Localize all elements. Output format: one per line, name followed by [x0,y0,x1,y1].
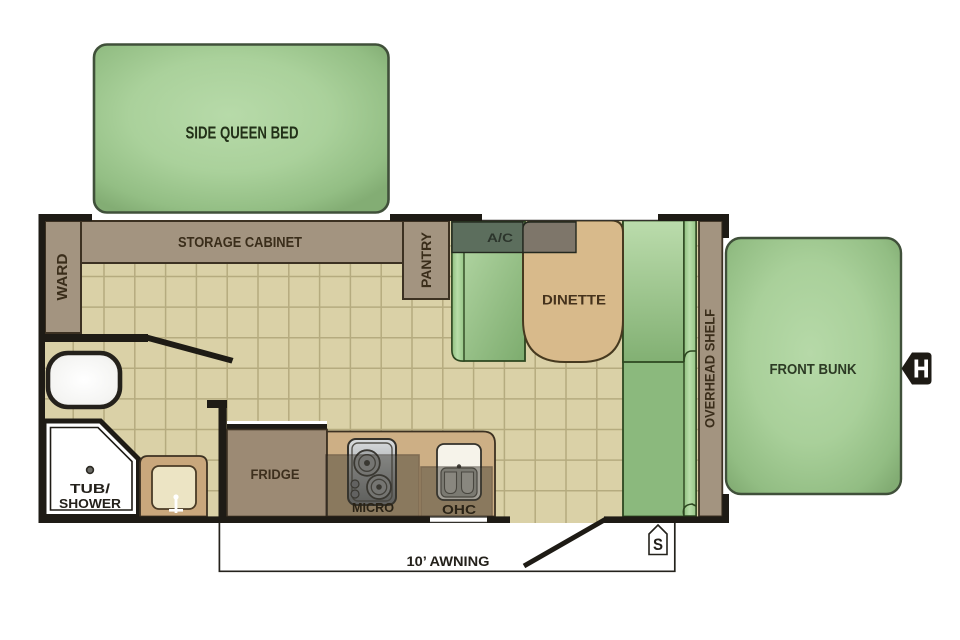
svg-text:S: S [653,535,663,554]
svg-text:STORAGE CABINET: STORAGE CABINET [178,235,302,251]
svg-text:OHC: OHC [442,503,476,517]
svg-text:SIDE QUEEN BED: SIDE QUEEN BED [186,123,299,143]
svg-text:DINETTE: DINETTE [542,292,606,308]
svg-text:MICRO: MICRO [352,501,394,515]
svg-text:OVERHEAD SHELF: OVERHEAD SHELF [703,309,718,428]
svg-text:10’ AWNING: 10’ AWNING [407,554,490,569]
svg-text:A/C: A/C [487,231,513,245]
svg-text:WARD: WARD [54,253,71,300]
svg-text:TUB/: TUB/ [70,481,110,496]
svg-text:FRIDGE: FRIDGE [251,467,300,482]
svg-text:PANTRY: PANTRY [418,231,434,288]
svg-text:SHOWER: SHOWER [59,496,122,511]
svg-text:FRONT BUNK: FRONT BUNK [770,362,857,378]
